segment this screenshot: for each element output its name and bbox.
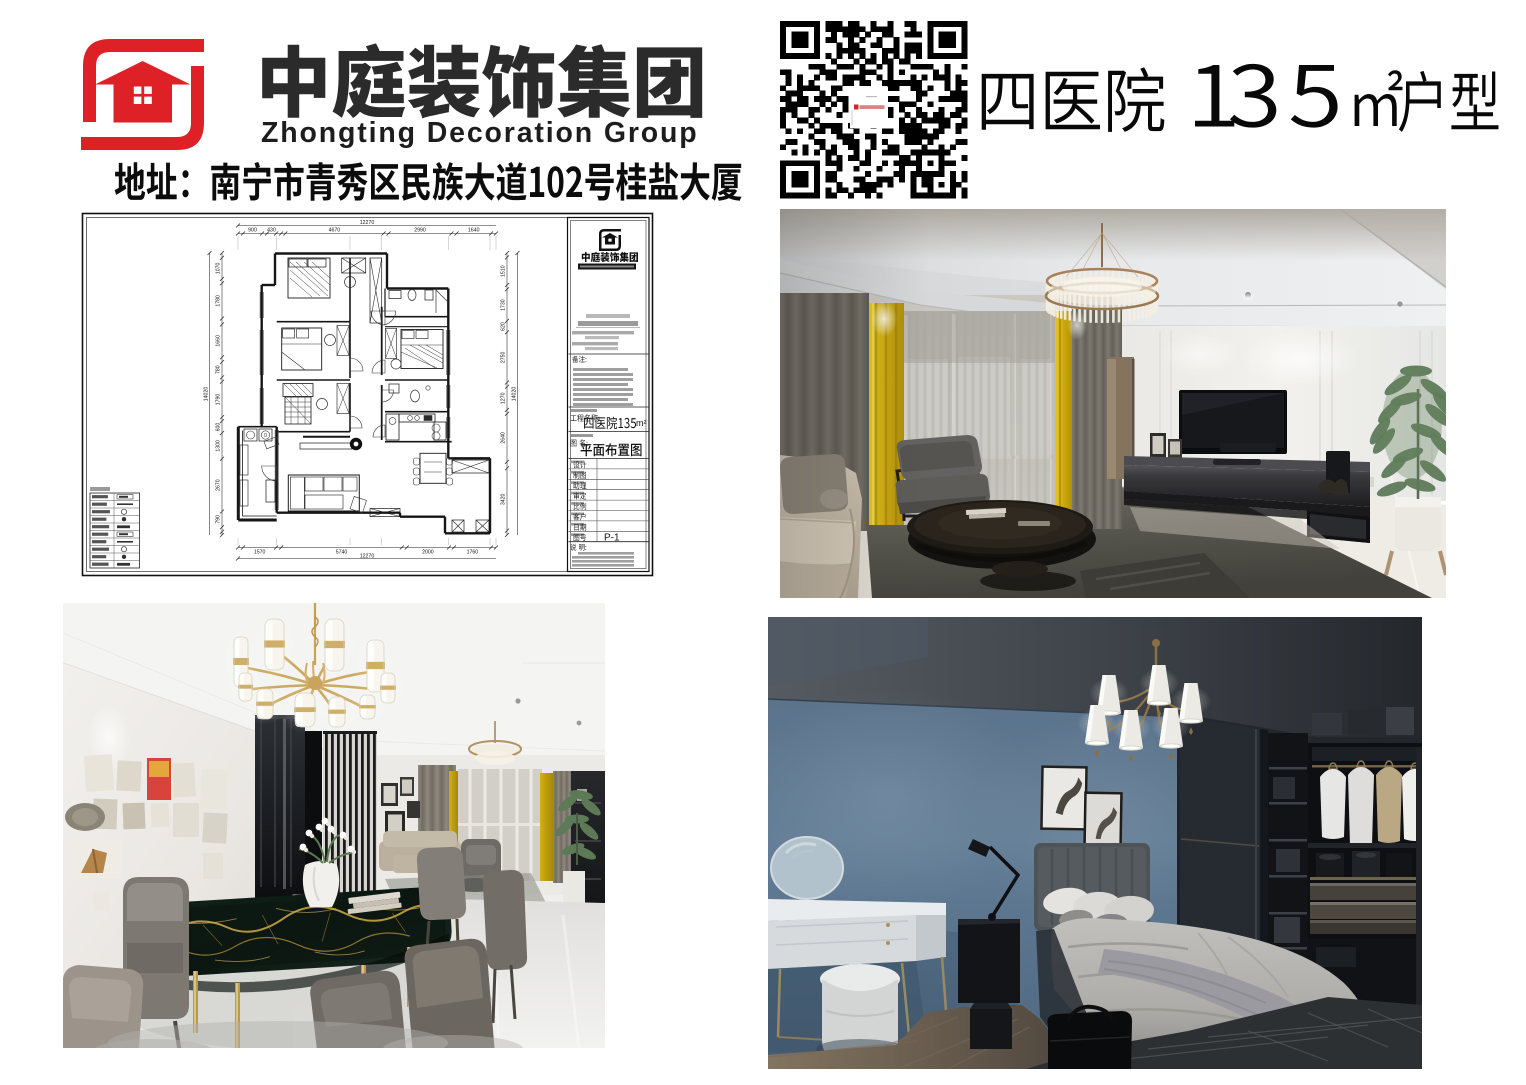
svg-text:12270: 12270: [360, 554, 375, 560]
svg-text:900: 900: [248, 228, 257, 234]
svg-text:12270: 12270: [360, 220, 375, 226]
svg-text:1730: 1730: [500, 299, 506, 311]
svg-text:1070: 1070: [215, 262, 221, 274]
svg-text:1790: 1790: [215, 394, 221, 406]
svg-text:14020: 14020: [204, 387, 210, 402]
svg-text:1780: 1780: [216, 295, 222, 307]
svg-text:780: 780: [216, 365, 222, 374]
svg-text:m²: m²: [636, 418, 647, 428]
svg-text:1510: 1510: [501, 265, 507, 277]
svg-text:2000: 2000: [422, 550, 434, 556]
svg-text:3420: 3420: [501, 494, 507, 506]
svg-text:1760: 1760: [467, 550, 479, 556]
svg-text:600: 600: [215, 423, 221, 432]
svg-text:2990: 2990: [414, 228, 426, 234]
svg-text:1300: 1300: [215, 440, 221, 452]
svg-text:1640: 1640: [468, 228, 480, 234]
svg-text:4670: 4670: [329, 228, 341, 234]
svg-text:1660: 1660: [215, 335, 221, 347]
svg-text:2670: 2670: [216, 479, 222, 491]
svg-text:620: 620: [500, 322, 506, 331]
svg-text:2750: 2750: [501, 351, 507, 363]
svg-text:14020: 14020: [512, 387, 518, 402]
svg-text:5740: 5740: [336, 550, 348, 556]
svg-text:Zhongting Decoration Group: Zhongting Decoration Group: [261, 117, 699, 149]
svg-text:2640: 2640: [500, 432, 506, 444]
svg-text:1570: 1570: [254, 550, 266, 556]
svg-text:790: 790: [216, 515, 222, 524]
svg-text:430: 430: [267, 228, 276, 234]
svg-text:1270: 1270: [501, 392, 507, 404]
